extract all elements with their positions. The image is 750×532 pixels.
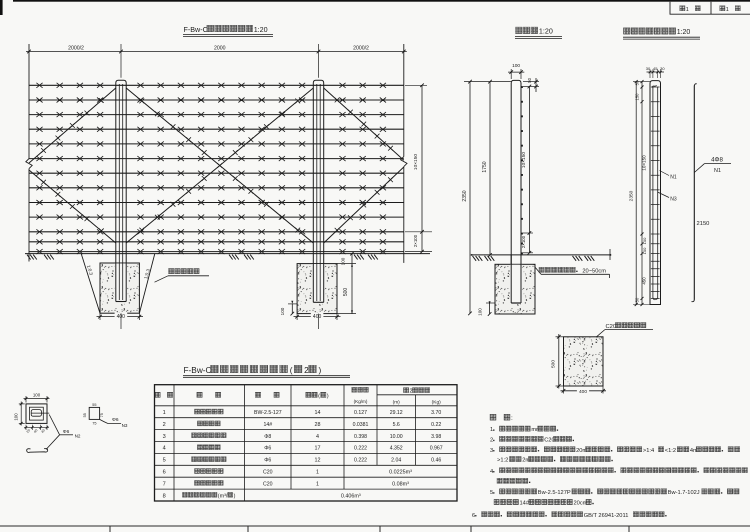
svg-text:500: 500: [550, 360, 556, 368]
svg-text:10×150: 10×150: [642, 155, 647, 171]
svg-text:N2: N2: [75, 433, 81, 438]
svg-text:50: 50: [527, 77, 532, 82]
svg-text:100: 100: [512, 63, 520, 69]
svg-text:400: 400: [579, 389, 587, 395]
svg-text:55: 55: [83, 413, 87, 417]
svg-text:6: 6: [163, 470, 166, 476]
svg-text:12: 12: [315, 458, 321, 464]
svg-text:4.352: 4.352: [390, 446, 403, 452]
svg-text:1:20: 1:20: [677, 29, 691, 36]
svg-text:17: 17: [315, 446, 321, 452]
svg-text:(m³/: (m³/: [218, 493, 228, 499]
svg-text:4: 4: [490, 469, 493, 475]
svg-text:3.70: 3.70: [431, 410, 441, 416]
svg-text:100: 100: [477, 308, 482, 316]
svg-text:75: 75: [100, 413, 104, 417]
svg-text:Φ6: Φ6: [264, 446, 271, 452]
svg-text:1: 1: [490, 427, 493, 433]
svg-text:0.0381: 0.0381: [353, 422, 369, 428]
svg-text:N1: N1: [670, 175, 677, 181]
svg-text:BW-2.5-127: BW-2.5-127: [254, 410, 282, 416]
svg-text:(: (: [318, 393, 320, 399]
svg-text:30: 30: [646, 66, 651, 71]
svg-text:450: 450: [642, 277, 647, 285]
svg-text:7: 7: [163, 481, 166, 487]
svg-text:1: 1: [686, 7, 689, 13]
svg-text:1:20: 1:20: [254, 26, 268, 34]
svg-text:2000/2: 2000/2: [68, 46, 84, 52]
svg-text:F-Bw-C: F-Bw-C: [184, 26, 208, 34]
svg-text:100: 100: [642, 247, 647, 254]
svg-text:28: 28: [315, 422, 321, 428]
svg-text:4Φ8: 4Φ8: [711, 156, 723, 163]
svg-text:100: 100: [13, 413, 18, 421]
svg-text:(Kg/m): (Kg/m): [354, 399, 368, 404]
svg-text:2150: 2150: [697, 221, 710, 227]
svg-text:29.12: 29.12: [390, 410, 403, 416]
svg-text:1: 1: [163, 410, 166, 416]
svg-text:): ): [319, 366, 322, 375]
svg-text:1:20: 1:20: [539, 28, 553, 36]
svg-text:75: 75: [92, 422, 96, 426]
svg-text:14#: 14#: [263, 422, 272, 428]
svg-text:<1:2: <1:2: [665, 448, 676, 454]
svg-text:N1: N1: [714, 168, 721, 174]
svg-text:2: 2: [490, 438, 493, 444]
svg-text:100: 100: [341, 257, 346, 265]
svg-text:20~50cm: 20~50cm: [582, 268, 606, 274]
svg-text:14: 14: [315, 410, 321, 416]
svg-text:F-Bw-C: F-Bw-C: [184, 366, 212, 375]
svg-text:100: 100: [280, 307, 285, 315]
svg-text:GB/T 26941-2011: GB/T 26941-2011: [584, 513, 629, 519]
svg-text:2350: 2350: [462, 190, 468, 201]
svg-text:45: 45: [653, 66, 658, 71]
svg-text:0.398: 0.398: [354, 434, 367, 440]
svg-text:Bw-2.5-127P: Bw-2.5-127P: [538, 490, 571, 496]
svg-text:1: 1: [316, 470, 319, 476]
svg-text:55: 55: [92, 403, 96, 407]
svg-text:14#: 14#: [520, 501, 530, 507]
svg-text:50: 50: [635, 297, 640, 302]
svg-text:>1:2: >1:2: [497, 458, 508, 464]
svg-text:2000/2: 2000/2: [353, 46, 369, 52]
svg-text:8: 8: [163, 493, 166, 499]
svg-text:N3: N3: [122, 423, 128, 428]
svg-text:(: (: [290, 366, 293, 375]
svg-text:): ): [234, 493, 236, 499]
svg-text:Φ6: Φ6: [63, 429, 70, 435]
svg-text:2: 2: [163, 422, 166, 428]
svg-text:C20: C20: [263, 470, 273, 476]
svg-text:(m): (m): [393, 399, 401, 405]
svg-text:10×150: 10×150: [521, 152, 527, 168]
svg-text:0.46: 0.46: [431, 458, 441, 464]
svg-text::: :: [511, 415, 513, 422]
svg-text:2350: 2350: [628, 190, 634, 201]
svg-text:30: 30: [660, 66, 665, 71]
svg-text:500: 500: [343, 288, 349, 297]
svg-text:1: 1: [316, 481, 319, 487]
svg-text:0.127: 0.127: [354, 410, 367, 416]
svg-text:5: 5: [490, 490, 493, 496]
svg-text:0.222: 0.222: [354, 458, 367, 464]
svg-text:2: 2: [304, 366, 309, 375]
svg-text:4: 4: [316, 434, 319, 440]
svg-text:0.222: 0.222: [354, 446, 367, 452]
svg-text:0.0225m³: 0.0225m³: [389, 470, 412, 476]
svg-text:C20: C20: [606, 324, 617, 330]
svg-text:10.00: 10.00: [390, 434, 403, 440]
svg-text:2×100: 2×100: [521, 235, 526, 248]
svg-text:1: 1: [726, 7, 729, 13]
svg-text:100: 100: [33, 392, 41, 397]
svg-text:150: 150: [635, 93, 640, 101]
svg-text:0.22: 0.22: [431, 422, 441, 428]
svg-text:100: 100: [642, 237, 647, 244]
svg-text:2: 2: [410, 389, 413, 395]
svg-text:0.406m³: 0.406m³: [341, 493, 361, 499]
svg-text:Φ6: Φ6: [264, 458, 271, 464]
svg-text:Φ8: Φ8: [264, 434, 271, 440]
svg-text:3.98: 3.98: [431, 434, 441, 440]
svg-text:2000: 2000: [214, 46, 226, 52]
svg-text:1750: 1750: [482, 161, 488, 172]
svg-text:C20: C20: [544, 438, 554, 444]
svg-text:400: 400: [313, 314, 322, 320]
svg-text:4: 4: [163, 446, 166, 452]
svg-text:10×150: 10×150: [413, 154, 419, 170]
svg-text:2×100: 2×100: [413, 234, 418, 247]
svg-text:3: 3: [490, 448, 493, 454]
svg-text:3: 3: [163, 434, 166, 440]
svg-text:>1:4: >1:4: [643, 448, 654, 454]
svg-text:0.967: 0.967: [430, 446, 443, 452]
svg-text:Φ6: Φ6: [112, 417, 119, 423]
svg-text:Bw-1.7-102J: Bw-1.7-102J: [668, 490, 700, 496]
svg-text:2.04: 2.04: [391, 458, 401, 464]
svg-text:0.08m³: 0.08m³: [392, 481, 409, 487]
svg-text:): ): [327, 393, 329, 399]
svg-text:C20: C20: [263, 481, 273, 487]
svg-text:6: 6: [472, 513, 475, 519]
svg-text:5: 5: [163, 458, 166, 464]
svg-text:20cm: 20cm: [574, 501, 588, 507]
svg-text:(Kg): (Kg): [432, 399, 441, 405]
svg-text:5.6: 5.6: [393, 422, 400, 428]
svg-text:N3: N3: [670, 197, 677, 203]
